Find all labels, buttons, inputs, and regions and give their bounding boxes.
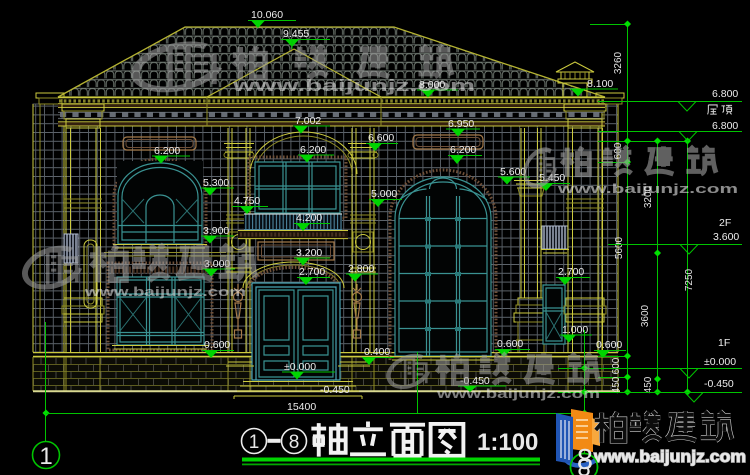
svg-text:2F: 2F xyxy=(719,217,731,229)
svg-text:-0.450: -0.450 xyxy=(704,378,734,390)
svg-text:6.800: 6.800 xyxy=(712,120,738,132)
svg-text:1F: 1F xyxy=(718,337,730,349)
svg-text:1: 1 xyxy=(249,432,260,453)
svg-text:2.700: 2.700 xyxy=(299,266,325,278)
svg-text:6.200: 6.200 xyxy=(450,144,476,156)
svg-text:8.100: 8.100 xyxy=(587,78,613,90)
svg-text:7250: 7250 xyxy=(684,268,695,291)
svg-text:5.000: 5.000 xyxy=(371,188,397,200)
svg-text:2.800: 2.800 xyxy=(348,263,374,275)
svg-text:1:100: 1:100 xyxy=(477,429,538,456)
svg-text:600: 600 xyxy=(611,357,622,374)
svg-text:3260: 3260 xyxy=(613,51,624,74)
svg-text:0.400: 0.400 xyxy=(364,346,390,358)
svg-text:www.baijunjz.com: www.baijunjz.com xyxy=(593,447,746,466)
svg-text:8: 8 xyxy=(289,432,300,453)
svg-text:6.200: 6.200 xyxy=(154,145,180,157)
svg-text:www.baijunjz.com: www.baijunjz.com xyxy=(556,181,738,196)
svg-text:3.200: 3.200 xyxy=(296,247,322,259)
svg-text:9.455: 9.455 xyxy=(283,28,309,40)
svg-text:www.baijunjz.com: www.baijunjz.com xyxy=(435,387,600,401)
svg-text:4.200: 4.200 xyxy=(296,212,322,224)
svg-text:3.600: 3.600 xyxy=(713,231,739,243)
svg-text:1: 1 xyxy=(39,443,52,470)
svg-text:6.950: 6.950 xyxy=(448,118,474,130)
svg-text:www.baijunjz.com: www.baijunjz.com xyxy=(84,284,246,299)
svg-text:5.600: 5.600 xyxy=(500,166,526,178)
svg-text:7.002: 7.002 xyxy=(295,115,321,127)
svg-text:4.750: 4.750 xyxy=(234,195,260,207)
svg-text:±0.000: ±0.000 xyxy=(284,361,316,373)
svg-text:www.baijunjz.com: www.baijunjz.com xyxy=(231,77,475,95)
svg-text:5.300: 5.300 xyxy=(203,177,229,189)
svg-text:8: 8 xyxy=(577,444,593,475)
svg-text:3600: 3600 xyxy=(640,304,651,327)
svg-text:0.600: 0.600 xyxy=(497,338,523,350)
svg-text:6.200: 6.200 xyxy=(300,144,326,156)
svg-text:450: 450 xyxy=(611,376,622,393)
svg-text:6.800: 6.800 xyxy=(712,88,738,100)
svg-text:3.900: 3.900 xyxy=(203,225,229,237)
svg-text:0.600: 0.600 xyxy=(596,339,622,351)
svg-text:0.600: 0.600 xyxy=(204,339,230,351)
svg-text:±0.000: ±0.000 xyxy=(704,356,736,368)
svg-text:2.700: 2.700 xyxy=(558,266,584,278)
svg-text:10.060: 10.060 xyxy=(251,9,283,21)
svg-text:-0.450: -0.450 xyxy=(320,384,350,396)
svg-text:450: 450 xyxy=(643,376,654,393)
svg-text:6.600: 6.600 xyxy=(368,132,394,144)
svg-text:15400: 15400 xyxy=(287,401,316,413)
svg-text:5600: 5600 xyxy=(614,236,625,259)
